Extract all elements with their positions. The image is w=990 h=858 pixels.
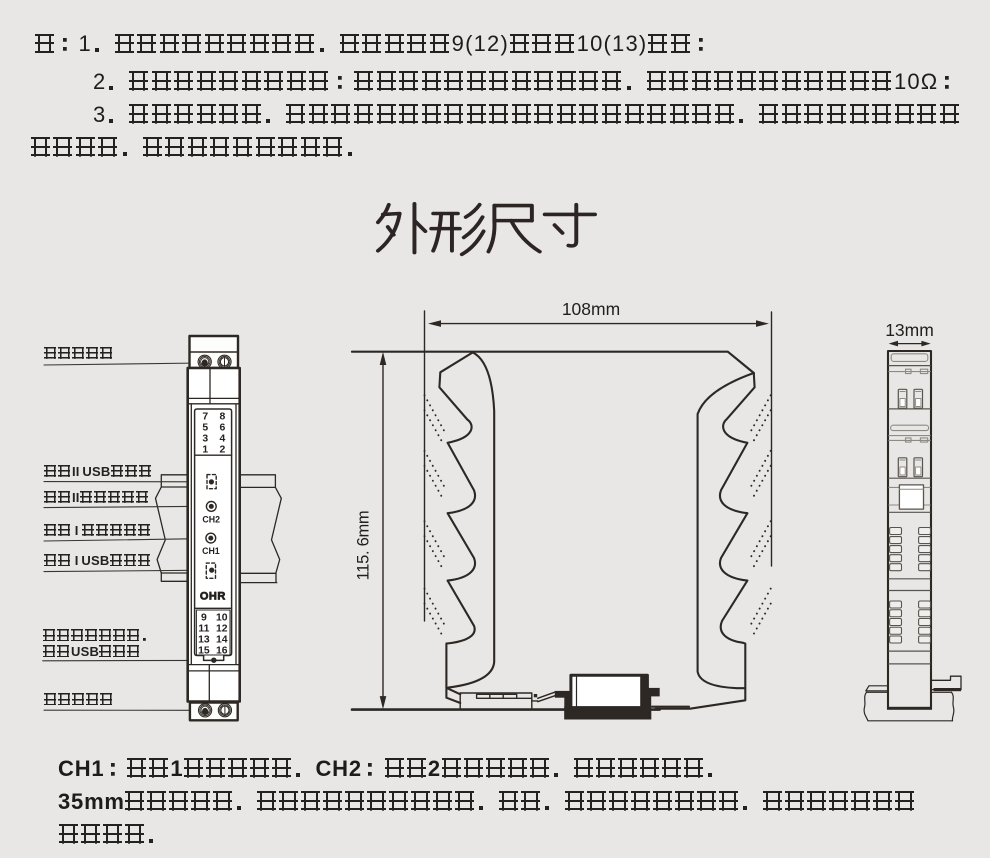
svg-text:14: 14: [216, 635, 228, 646]
svg-text:1: 1: [202, 445, 208, 456]
svg-text:2: 2: [220, 445, 226, 456]
svg-text:OHR: OHR: [200, 591, 226, 603]
svg-text:CH1: CH1: [202, 546, 220, 556]
svg-text:15: 15: [198, 646, 210, 657]
svg-text:9: 9: [201, 613, 207, 624]
svg-text:4: 4: [220, 434, 226, 445]
svg-text:10: 10: [216, 613, 228, 624]
svg-text:3: 3: [202, 434, 208, 445]
svg-text:CH2: CH2: [202, 515, 220, 525]
svg-text:6: 6: [220, 422, 226, 433]
svg-text:16: 16: [216, 646, 228, 657]
svg-text:11: 11: [198, 624, 209, 635]
svg-text:13: 13: [198, 635, 210, 646]
svg-text:13mm: 13mm: [885, 320, 934, 340]
svg-text:115. 6mm: 115. 6mm: [354, 511, 372, 581]
svg-text:8: 8: [220, 411, 226, 422]
svg-text:108mm: 108mm: [562, 299, 620, 319]
svg-text:12: 12: [216, 624, 228, 635]
svg-text:7: 7: [202, 411, 208, 422]
svg-text:5: 5: [202, 422, 208, 433]
